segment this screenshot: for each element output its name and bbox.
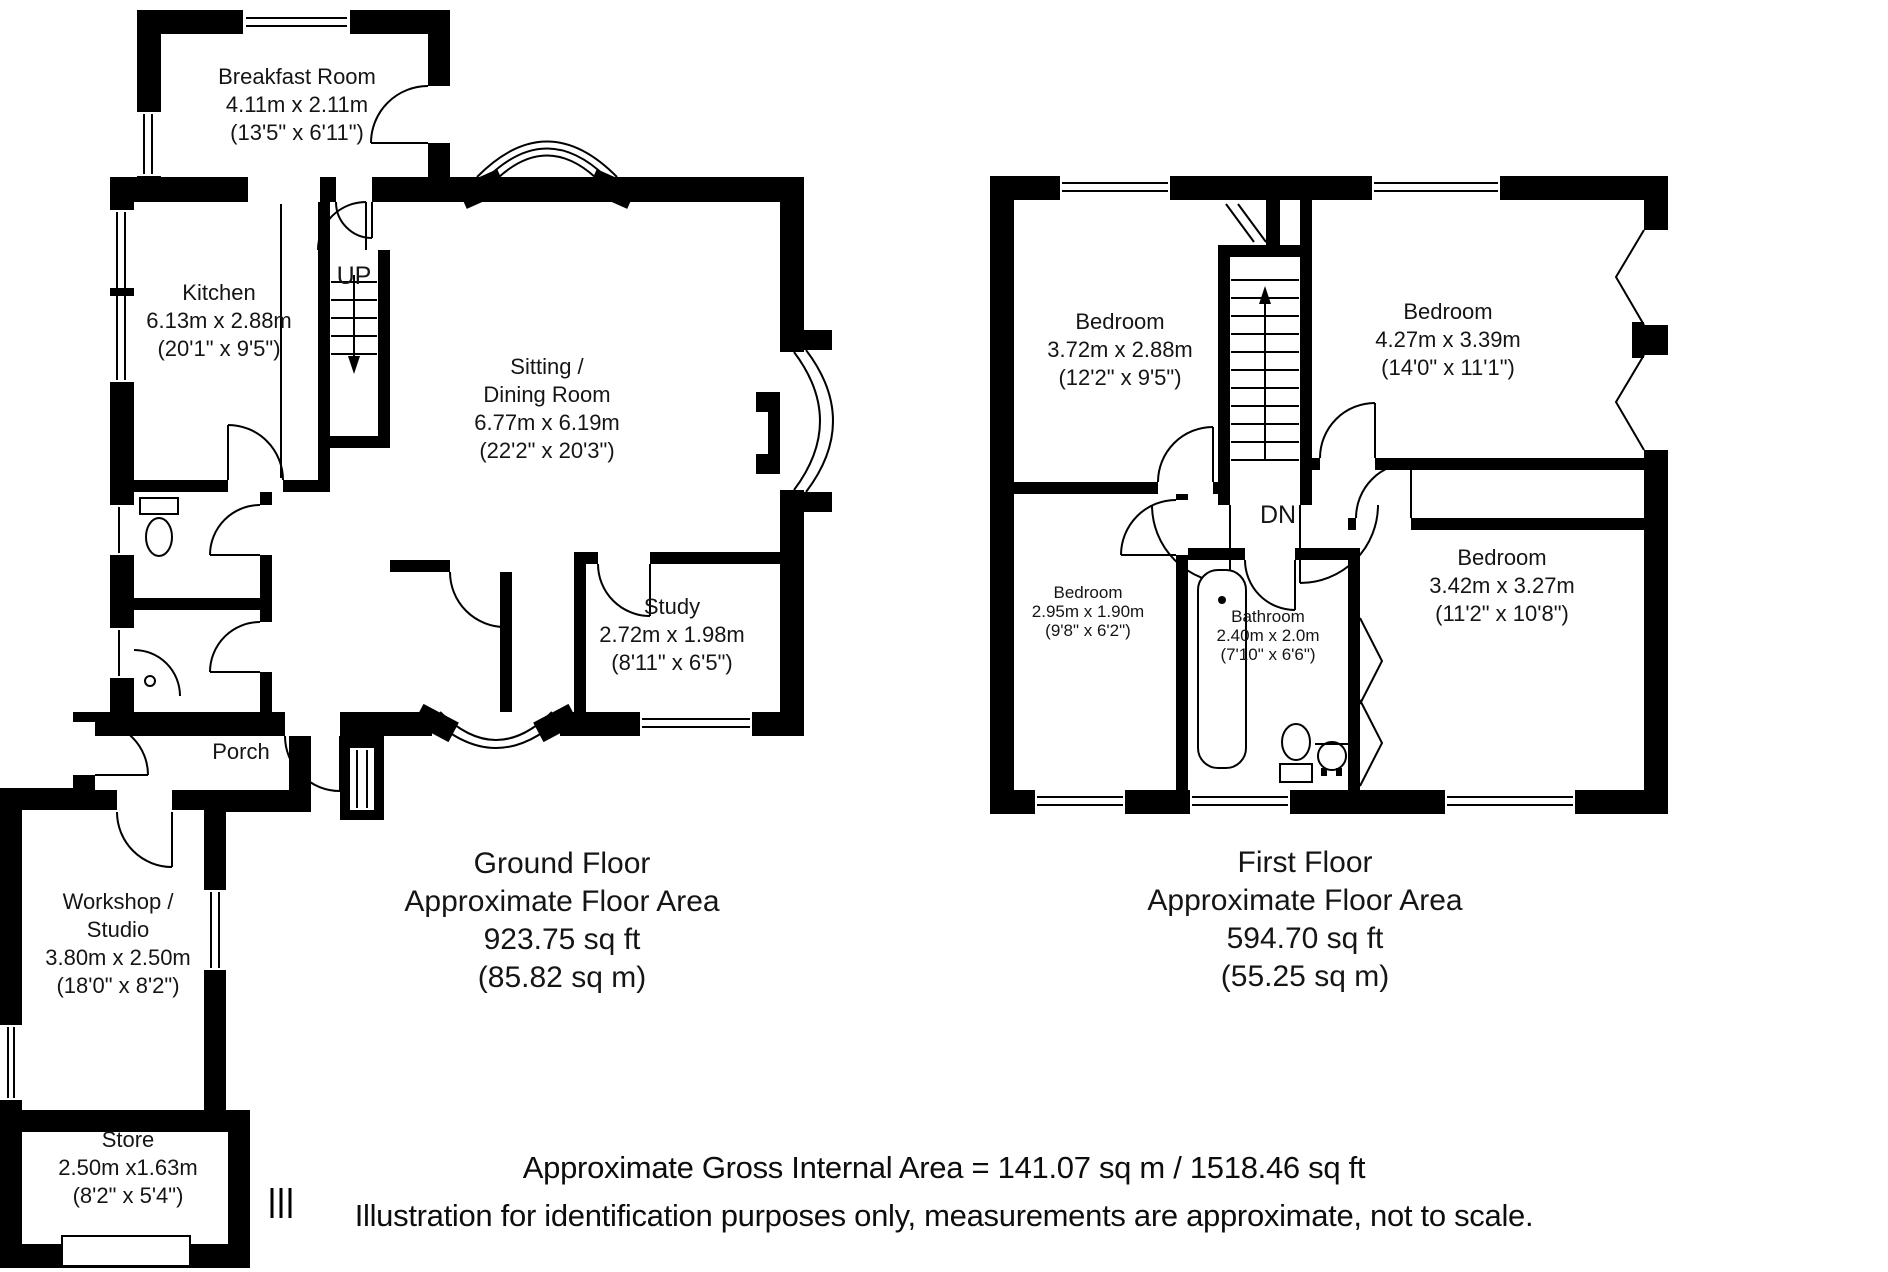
stairs-direction: UP [337, 263, 372, 289]
sitting-dining-room-label: Sitting / Dining Room 6.77m x 6.19m (22'… [474, 353, 620, 465]
floor-title: First Floor [1147, 844, 1462, 882]
room-name: Bedroom [1032, 583, 1144, 602]
study-label: Study 2.72m x 1.98m (8'11" x 6'5") [599, 593, 745, 677]
disclaimer-text: Illustration for identification purposes… [0, 1198, 1888, 1234]
room-name: Workshop / [45, 888, 191, 916]
room-size-imperial: (8'11" x 6'5") [599, 649, 745, 677]
room-name: Bedroom [1047, 308, 1193, 336]
toilet-icon-ff [1280, 724, 1312, 782]
floor-area-m: (85.82 sq m) [404, 959, 719, 997]
room-size-imperial: (14'0" x 11'1") [1375, 354, 1521, 382]
room-name: Dining Room [474, 381, 620, 409]
room-name: Kitchen [146, 279, 292, 307]
room-size-imperial: (9'8" x 6'2") [1032, 621, 1144, 640]
stairs-down-label: DN [1260, 502, 1296, 528]
bathtub-icon [1198, 570, 1246, 768]
breakfast-room-label: Breakfast Room 4.11m x 2.11m (13'5" x 6'… [218, 63, 376, 147]
room-size-metric: 6.77m x 6.19m [474, 409, 620, 437]
floor-subtitle: Approximate Floor Area [404, 883, 719, 921]
room-size-metric: 4.27m x 3.39m [1375, 326, 1521, 354]
stairs-direction: DN [1260, 502, 1296, 528]
floorplan-drawing [0, 0, 1888, 1272]
room-size-imperial: (22'2" x 20'3") [474, 437, 620, 465]
room-size-metric: 4.11m x 2.11m [218, 91, 376, 119]
ground-floor-area-summary: Ground Floor Approximate Floor Area 923.… [404, 845, 719, 997]
hall-window-box [340, 736, 384, 820]
room-size-metric: 3.42m x 3.27m [1429, 572, 1575, 600]
room-size-metric: 3.72m x 2.88m [1047, 336, 1193, 364]
first-floor-area-summary: First Floor Approximate Floor Area 594.7… [1147, 844, 1462, 996]
floor-area-m: (55.25 sq m) [1147, 958, 1462, 996]
floor-title: Ground Floor [404, 845, 719, 883]
kitchen-label: Kitchen 6.13m x 2.88m (20'1" x 9'5") [146, 279, 292, 363]
room-size-imperial: (12'2" x 9'5") [1047, 364, 1193, 392]
porch-label: Porch [212, 738, 269, 766]
room-size-metric: 2.40m x 2.0m [1217, 626, 1320, 645]
room-size-imperial: (20'1" x 9'5") [146, 335, 292, 363]
room-size-imperial: (7'10" x 6'6") [1217, 645, 1320, 664]
room-size-imperial: (18'0" x 8'2") [45, 972, 191, 1000]
room-size-imperial: (11'2" x 10'8") [1429, 600, 1575, 628]
bedroom3-label: Bedroom 2.95m x 1.90m (9'8" x 6'2") [1032, 583, 1144, 640]
floor-area-ft: 594.70 sq ft [1147, 920, 1462, 958]
room-size-metric: 2.95m x 1.90m [1032, 602, 1144, 621]
room-name: Studio [45, 916, 191, 944]
room-name: Study [599, 593, 745, 621]
room-size-metric: 6.13m x 2.88m [146, 307, 292, 335]
room-size-metric: 3.80m x 2.50m [45, 944, 191, 972]
bedroom1-label: Bedroom 3.72m x 2.88m (12'2" x 9'5") [1047, 308, 1193, 392]
floorplan-page: Breakfast Room 4.11m x 2.11m (13'5" x 6'… [0, 0, 1888, 1272]
floor-subtitle: Approximate Floor Area [1147, 882, 1462, 920]
room-name: Bedroom [1375, 298, 1521, 326]
gross-internal-area-text: Approximate Gross Internal Area = 141.07… [0, 1150, 1888, 1186]
room-name: Bathroom [1217, 607, 1320, 626]
room-size-metric: 2.72m x 1.98m [599, 621, 745, 649]
floor-area-ft: 923.75 sq ft [404, 921, 719, 959]
stairs-up-label: UP [337, 263, 372, 289]
bedroom4-label: Bedroom 3.42m x 3.27m (11'2" x 10'8") [1429, 544, 1575, 628]
bathroom-label: Bathroom 2.40m x 2.0m (7'10" x 6'6") [1217, 607, 1320, 664]
workshop-studio-label: Workshop / Studio 3.80m x 2.50m (18'0" x… [45, 888, 191, 1000]
store-step [62, 1236, 190, 1266]
first-floor-plan [990, 176, 1668, 814]
room-name: Porch [212, 738, 269, 766]
room-size-imperial: (13'5" x 6'11") [218, 119, 376, 147]
room-name: Bedroom [1429, 544, 1575, 572]
bedroom2-label: Bedroom 4.27m x 3.39m (14'0" x 11'1") [1375, 298, 1521, 382]
room-name: Breakfast Room [218, 63, 376, 91]
room-name: Sitting / [474, 353, 620, 381]
